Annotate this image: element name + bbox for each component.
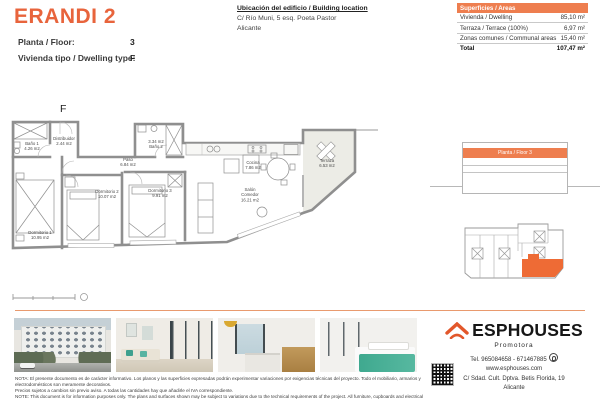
room-area-distribuidor: 2.44 m2 [56,141,72,146]
room-area-dormitorio1: 10.95 m2 [31,235,50,240]
key-plan [462,221,566,285]
bedroom3-furniture [129,174,182,237]
areas-row-value: 85,10 m² [561,14,585,21]
building-location-heading: Ubicación del edificio / Building locati… [237,4,368,14]
esphouses-house-icon [445,322,469,339]
floor-value: 3 [130,37,135,47]
building-location-city: Alicante [237,24,368,34]
areas-row-dwelling: Vivienda / Dwelling 85,10 m² [457,13,588,23]
svg-text:Paso6.84 m2: Paso6.84 m2 [120,157,136,167]
building-location-street: C/ Río Muni, 5 esq. Poeta Pastor [237,14,368,24]
elevation-ground-line-right [566,186,600,187]
svg-text:SalónComedor16.21 m2: SalónComedor16.21 m2 [241,187,260,202]
dwelling-type-value: F [130,53,135,63]
building-elevation: Planta / Floor 3 [462,142,568,194]
room-label-bano2: Baño 2 [149,144,163,149]
terrace-area [303,130,355,213]
page-title: ERANDI 2 [14,5,116,29]
svg-text:Distribuidor2.44 m2: Distribuidor2.44 m2 [53,136,75,146]
disclaimer-notes: NOTA: El presente documento es de caráct… [15,376,433,400]
areas-total-value: 107,47 m² [557,45,585,52]
photo-building-exterior [14,318,111,372]
areas-row-value: 15,40 m² [561,35,585,42]
svg-text:Dormitorio 110.95 m2: Dormitorio 110.95 m2 [28,230,52,240]
svg-text:Cocina7.86 m2: Cocina7.86 m2 [245,160,261,170]
areas-total-label: Total [460,45,474,52]
svg-text:Baño 14.26 m2: Baño 14.26 m2 [24,141,40,151]
areas-row-total: Total 107,47 m² [457,44,588,53]
note-es-1: NOTA: El presente documento es de caráct… [15,376,433,388]
areas-row-communal: Zonas comunes / Communal areas 15,40 m² [457,34,588,44]
brand-name: ESPHOUSES [472,320,583,341]
room-area-paso: 6.84 m2 [120,162,136,167]
svg-text:Dormitorio 210.07 m2: Dormitorio 210.07 m2 [95,189,119,199]
whatsapp-icon [549,353,558,362]
areas-row-value: 6,97 m² [564,25,585,32]
dwelling-type-row: Vivienda tipo / Dwelling type: F [18,53,135,63]
areas-row-terrace: Terraza / Terrace (100%) 6,97 m² [457,23,588,33]
bedroom2-furniture [65,177,99,240]
room-area-dormitorio2: 10.07 m2 [98,194,117,199]
photo-kitchen-dining [218,318,315,372]
scale-bar [13,294,75,300]
room-area-cocina: 7.86 m2 [245,165,261,170]
areas-table: Superficies / Areas Vivienda / Dwelling … [457,3,588,53]
dwelling-type-label: Vivienda tipo / Dwelling type: [18,53,135,63]
svg-text:Dormitorio 39.91 m2: Dormitorio 39.91 m2 [148,188,172,198]
note-en-1: NOTE: This document is for information p… [15,394,433,400]
floor-label: Planta / Floor: [18,37,75,47]
room-area-bano1: 4.26 m2 [24,146,40,151]
room-area-salon: 16.21 m2 [241,197,260,202]
floor-row: Planta / Floor: 3 [18,37,75,47]
north-indicator-icon [81,294,88,301]
unit-letter: F [60,103,66,115]
elevation-ground-line-left [430,186,462,187]
brand-subtitle: Promotora [428,342,600,349]
areas-row-label: Vivienda / Dwelling [460,14,512,21]
room-area-terraza: 6.53 m2 [319,163,335,168]
svg-text:Terraza6.53 m2: Terraza6.53 m2 [319,158,335,168]
areas-row-label: Terraza / Terrace (100%) [460,25,528,32]
photo-living-room [116,318,213,372]
elevation-floor-band: Planta / Floor 3 [463,148,567,158]
areas-table-header: Superficies / Areas [457,3,588,13]
photo-bedroom [320,318,417,372]
qr-code [431,363,454,386]
building-location: Ubicación del edificio / Building locati… [237,4,368,34]
svg-text:3.34 m2Baño 2: 3.34 m2Baño 2 [148,139,164,149]
room-area-dormitorio3: 9.91 m2 [152,193,168,198]
orange-divider [15,310,585,311]
areas-row-label: Zonas comunes / Communal areas [460,35,556,42]
floor-plan: F [10,95,400,310]
kitchen-counter [186,144,300,156]
brochure-sheet: ERANDI 2 Planta / Floor: 3 Vivienda tipo… [0,0,600,400]
